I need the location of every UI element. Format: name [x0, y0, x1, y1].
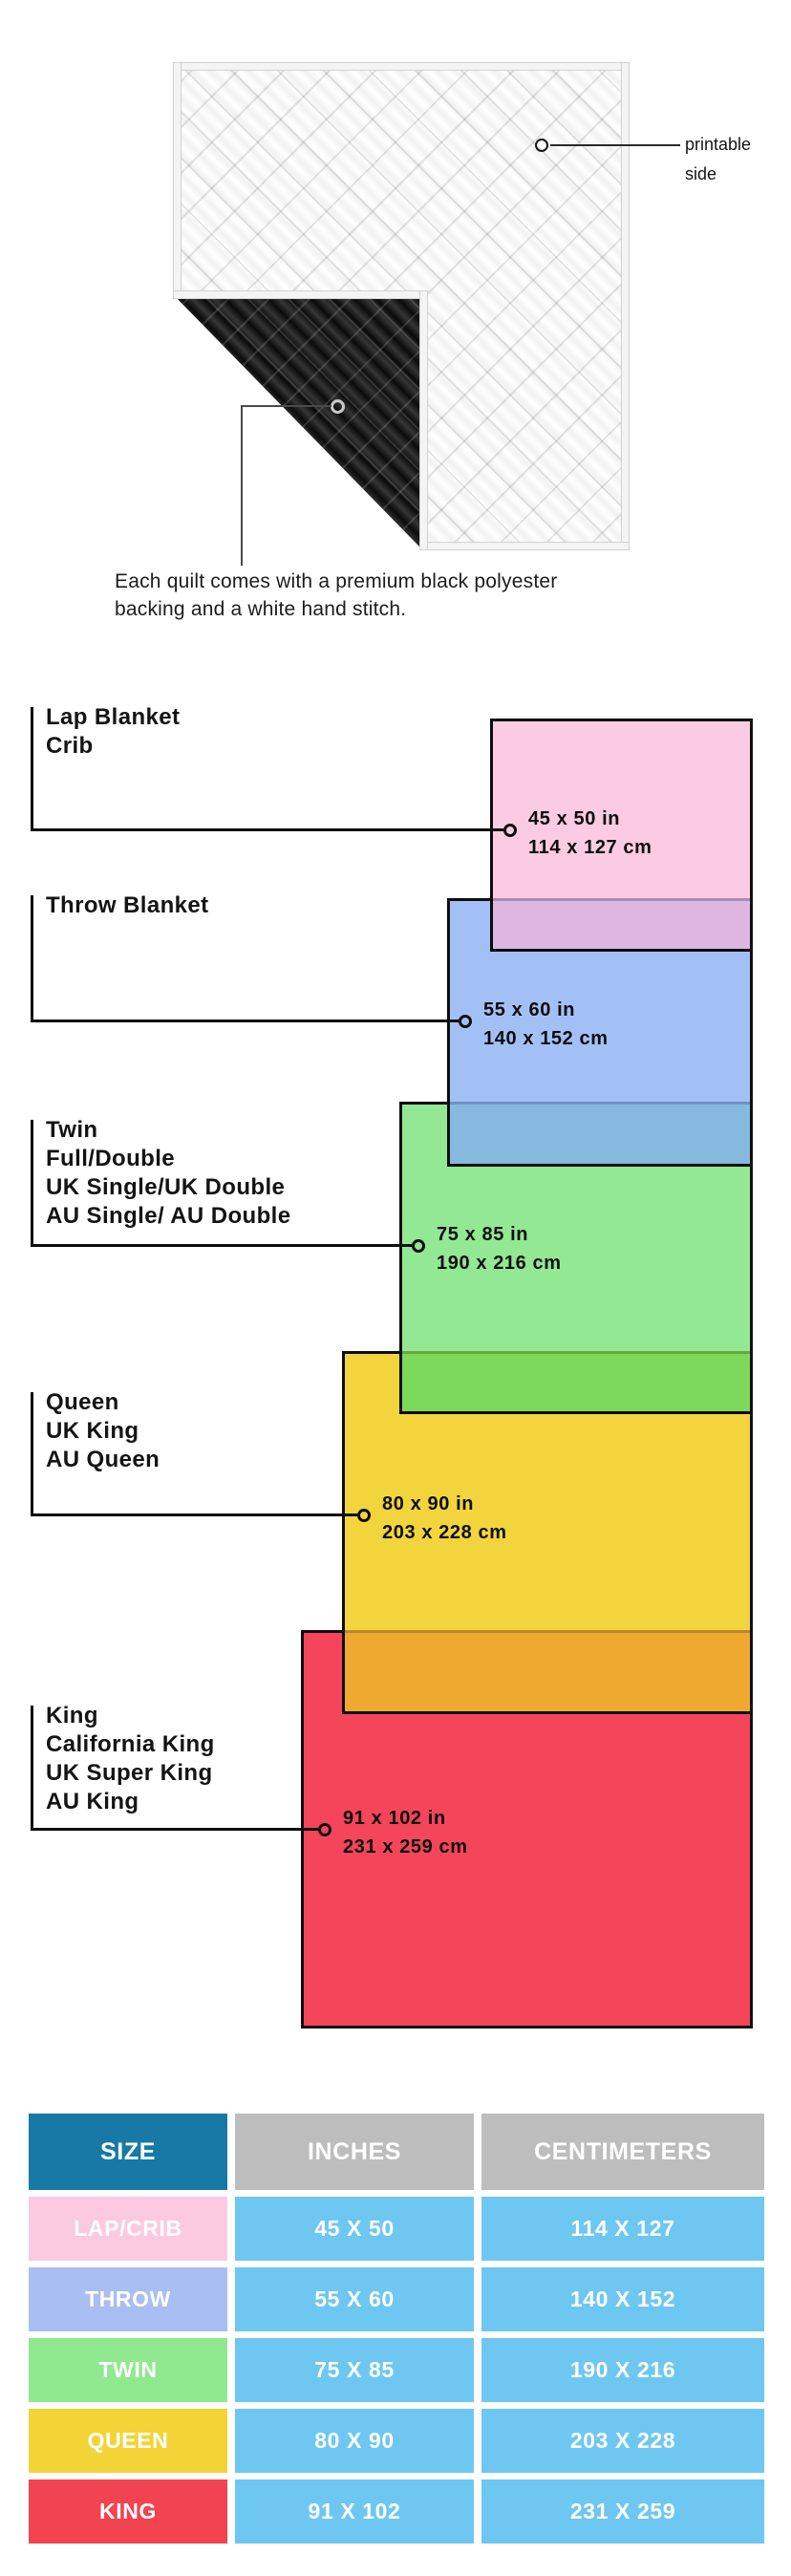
label-twin-line: Twin	[46, 1116, 290, 1145]
table-header-size: SIZE	[29, 2114, 227, 2190]
marker-king-icon	[318, 1823, 331, 1836]
dim-queen: 80 x 90 in 203 x 228 cm	[382, 1490, 507, 1547]
leader-queen-horizontal	[31, 1513, 357, 1516]
label-lap: Lap Blanket Crib	[46, 703, 180, 761]
table-row-lap-inches: 45 X 50	[235, 2197, 474, 2261]
table-header-centimeters: CENTIMETERS	[481, 2114, 764, 2190]
leader-lap-vertical	[31, 707, 33, 831]
leader-throw-horizontal	[31, 1020, 459, 1022]
leader-twin-vertical	[31, 1120, 33, 1247]
dim-lap-inches: 45 x 50 in	[528, 805, 652, 833]
table-row-twin-cm: 190 X 216	[481, 2338, 764, 2402]
table-row-throw-inches: 55 X 60	[235, 2267, 474, 2331]
label-twin-line: Full/Double	[46, 1145, 290, 1173]
table-row-king-size: KING	[29, 2479, 227, 2544]
marker-twin-icon	[412, 1239, 425, 1253]
table-row-throw-cm: 140 X 152	[481, 2267, 764, 2331]
table-row-queen-size: QUEEN	[29, 2409, 227, 2473]
label-queen: Queen UK King AU Queen	[46, 1388, 160, 1474]
size-comparison-diagram: Lap Blanket Crib 45 x 50 in 114 x 127 cm…	[0, 0, 791, 2083]
dim-throw: 55 x 60 in 140 x 152 cm	[483, 996, 609, 1053]
label-king: King California King UK Super King AU Ki…	[46, 1702, 215, 1816]
leader-king-horizontal	[31, 1828, 318, 1831]
label-lap-line: Lap Blanket	[46, 703, 180, 732]
label-queen-line: Queen	[46, 1388, 160, 1417]
table-row-lap-size: LAP/CRIB	[29, 2197, 227, 2261]
table-row-queen-cm: 203 X 228	[481, 2409, 764, 2473]
table-row-king-inches: 91 X 102	[235, 2479, 474, 2544]
size-table: SIZE INCHES CENTIMETERS LAP/CRIB 45 X 50…	[29, 2114, 764, 2544]
dim-king-cm: 231 x 259 cm	[343, 1833, 468, 1861]
dim-lap: 45 x 50 in 114 x 127 cm	[528, 805, 652, 862]
label-king-line: California King	[46, 1730, 215, 1759]
table-row-lap-cm: 114 X 127	[481, 2197, 764, 2261]
marker-queen-icon	[357, 1509, 371, 1522]
dim-lap-cm: 114 x 127 cm	[528, 833, 652, 862]
label-king-line: UK Super King	[46, 1759, 215, 1788]
dim-twin: 75 x 85 in 190 x 216 cm	[437, 1220, 562, 1277]
dim-queen-cm: 203 x 228 cm	[382, 1518, 507, 1547]
leader-king-vertical	[31, 1706, 33, 1831]
label-twin: Twin Full/Double UK Single/UK Double AU …	[46, 1116, 290, 1231]
label-queen-line: AU Queen	[46, 1446, 160, 1474]
table-row-throw-size: THROW	[29, 2267, 227, 2331]
dim-twin-inches: 75 x 85 in	[437, 1220, 562, 1249]
label-throw-line: Throw Blanket	[46, 891, 209, 920]
dim-king-inches: 91 x 102 in	[343, 1804, 468, 1833]
table-header-inches: INCHES	[235, 2114, 474, 2190]
table-row-king-cm: 231 X 259	[481, 2479, 764, 2544]
dim-throw-cm: 140 x 152 cm	[483, 1024, 609, 1053]
table-row-twin-size: TWIN	[29, 2338, 227, 2402]
leader-twin-horizontal	[31, 1244, 412, 1247]
label-twin-line: AU Single/ AU Double	[46, 1202, 290, 1231]
table-row-queen-inches: 80 X 90	[235, 2409, 474, 2473]
leader-throw-vertical	[31, 895, 33, 1022]
label-queen-line: UK King	[46, 1417, 160, 1446]
dim-queen-inches: 80 x 90 in	[382, 1490, 507, 1518]
quilt-size-infographic: printable side Each quilt comes with a p…	[0, 0, 791, 2576]
label-twin-line: UK Single/UK Double	[46, 1173, 290, 1202]
label-lap-line: Crib	[46, 732, 180, 761]
dim-throw-inches: 55 x 60 in	[483, 996, 609, 1024]
leader-queen-vertical	[31, 1392, 33, 1516]
label-king-line: AU King	[46, 1788, 215, 1816]
label-throw: Throw Blanket	[46, 891, 209, 920]
marker-lap-icon	[503, 824, 517, 837]
dim-twin-cm: 190 x 216 cm	[437, 1249, 562, 1277]
leader-lap-horizontal	[31, 828, 503, 831]
label-king-line: King	[46, 1702, 215, 1730]
dim-king: 91 x 102 in 231 x 259 cm	[343, 1804, 468, 1861]
marker-throw-icon	[459, 1015, 472, 1028]
table-row-twin-inches: 75 X 85	[235, 2338, 474, 2402]
